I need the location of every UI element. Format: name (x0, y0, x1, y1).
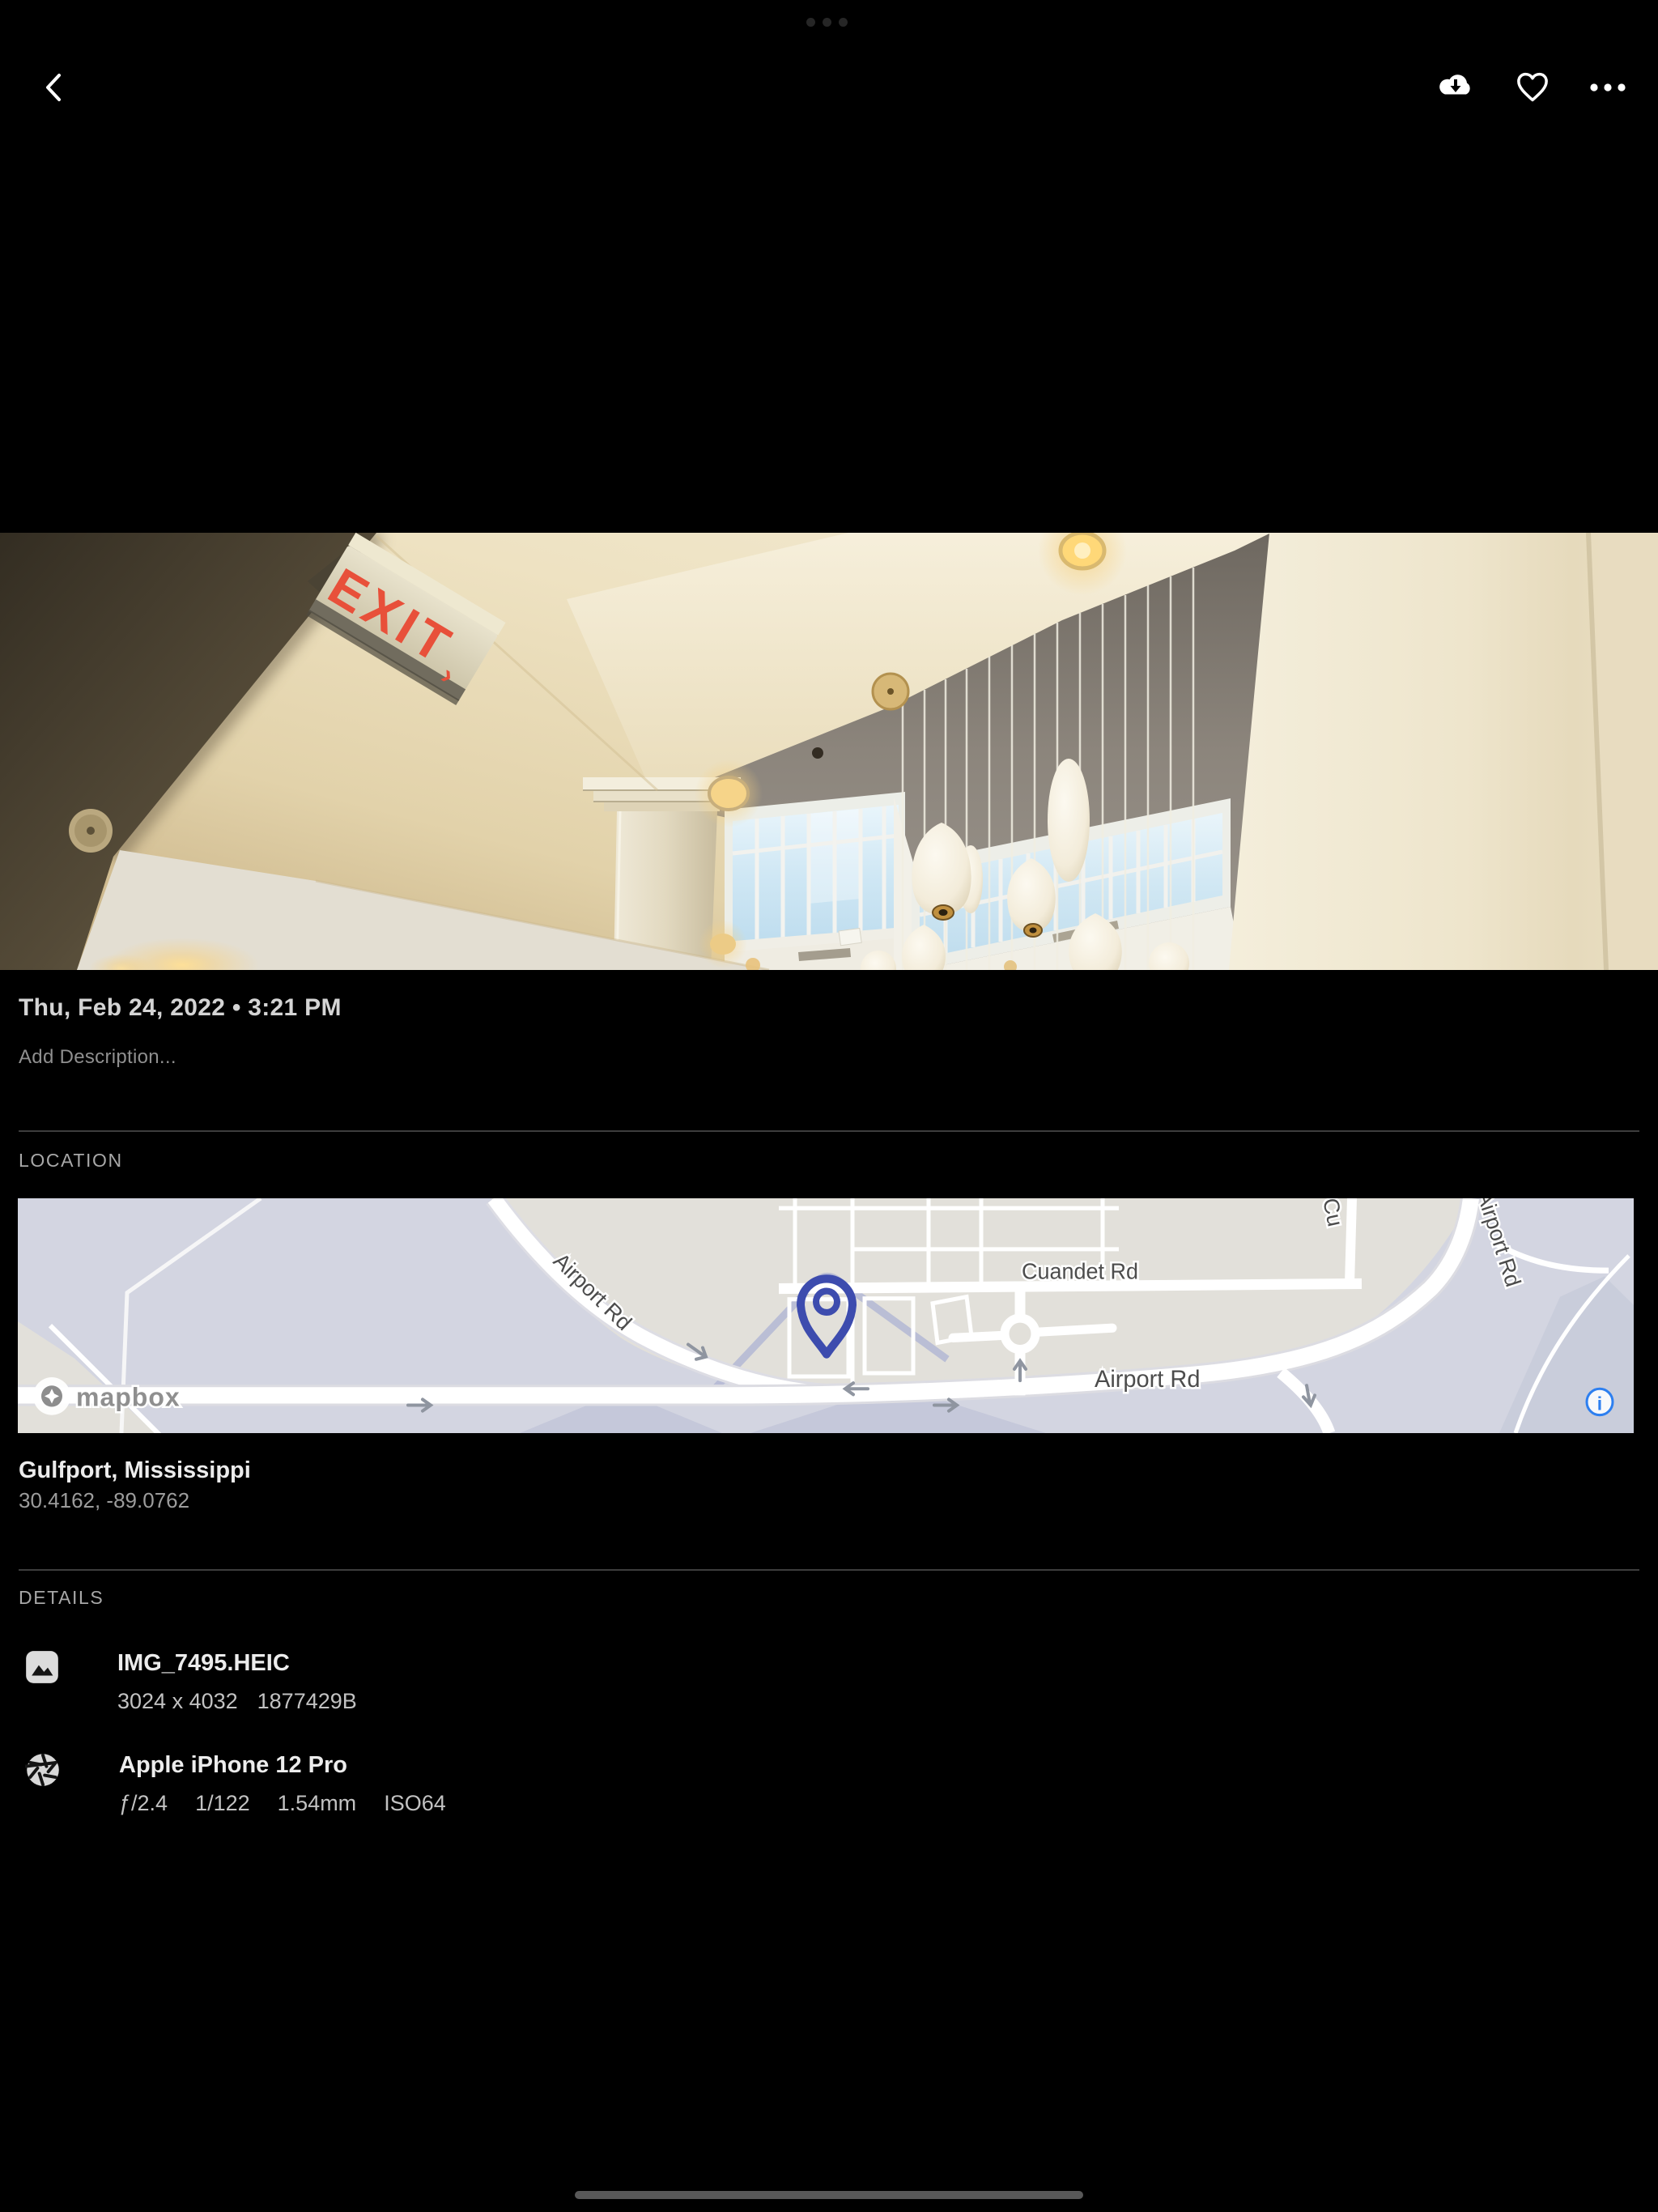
file-size: 1877429B (257, 1689, 357, 1714)
mapbox-wordmark: mapbox (76, 1382, 181, 1411)
place-name: Gulfport, Mississippi (19, 1457, 251, 1484)
download-button[interactable] (1436, 71, 1475, 106)
multitask-indicator[interactable] (806, 18, 848, 27)
photo-content: EXIT › (0, 533, 1658, 970)
aperture-icon (25, 1752, 61, 1788)
location-map[interactable]: Airport Rd Cuandet Rd Airport Rd Airport… (18, 1198, 1634, 1433)
more-button[interactable] (1587, 80, 1629, 97)
photo-viewer[interactable]: EXIT › (0, 533, 1658, 970)
place-coordinates: 30.4162, -89.0762 (19, 1488, 189, 1513)
cloud-download-icon (1436, 71, 1475, 104)
description-input[interactable]: Add Description... (19, 1046, 176, 1069)
camera-shutter: 1/122 (195, 1791, 250, 1816)
asset-date: Thu, Feb 24, 2022 • 3:21 PM (19, 994, 342, 1022)
file-name: IMG_7495.HEIC (117, 1650, 376, 1677)
back-button[interactable] (37, 70, 73, 108)
info-glyph: i (1597, 1393, 1602, 1414)
road-label: Airport Rd (1095, 1367, 1200, 1393)
camera-aperture: ƒ/2.4 (119, 1791, 168, 1816)
camera-iso: ISO64 (384, 1791, 446, 1816)
divider (19, 1569, 1639, 1571)
sprinkler (812, 747, 823, 759)
camera-info: ƒ/2.4 1/122 1.54mm ISO64 (119, 1791, 474, 1816)
file-info: 3024 x 4032 1877429B (117, 1689, 376, 1714)
file-detail-row: IMG_7495.HEIC 3024 x 4032 1877429B (25, 1650, 376, 1714)
camera-detail-row: Apple iPhone 12 Pro ƒ/2.4 1/122 1.54mm I… (25, 1752, 474, 1816)
ellipsis-icon (1587, 80, 1629, 95)
file-dimensions: 3024 x 4032 (117, 1689, 238, 1714)
photo-detail-screen: EXIT › Thu, Feb (0, 0, 1658, 2212)
road-label: Cuandet Rd (1022, 1258, 1138, 1283)
map-info-button[interactable]: i (1587, 1389, 1613, 1414)
camera-name: Apple iPhone 12 Pro (119, 1752, 474, 1779)
heart-icon (1516, 71, 1550, 104)
clerestory-windows-left (725, 792, 905, 970)
divider (19, 1130, 1639, 1132)
chevron-left-icon (37, 70, 73, 105)
road-cuandet (779, 1283, 1362, 1288)
details-header: DETAILS (19, 1587, 104, 1609)
image-icon (25, 1650, 59, 1684)
mapbox-logo[interactable]: mapbox (33, 1377, 181, 1415)
favorite-button[interactable] (1516, 71, 1550, 106)
smoke-detector (69, 809, 113, 853)
home-indicator[interactable] (575, 2191, 1083, 2199)
location-header: LOCATION (19, 1150, 123, 1172)
wall-speaker (839, 928, 861, 945)
camera-focal-length: 1.54mm (278, 1791, 357, 1816)
